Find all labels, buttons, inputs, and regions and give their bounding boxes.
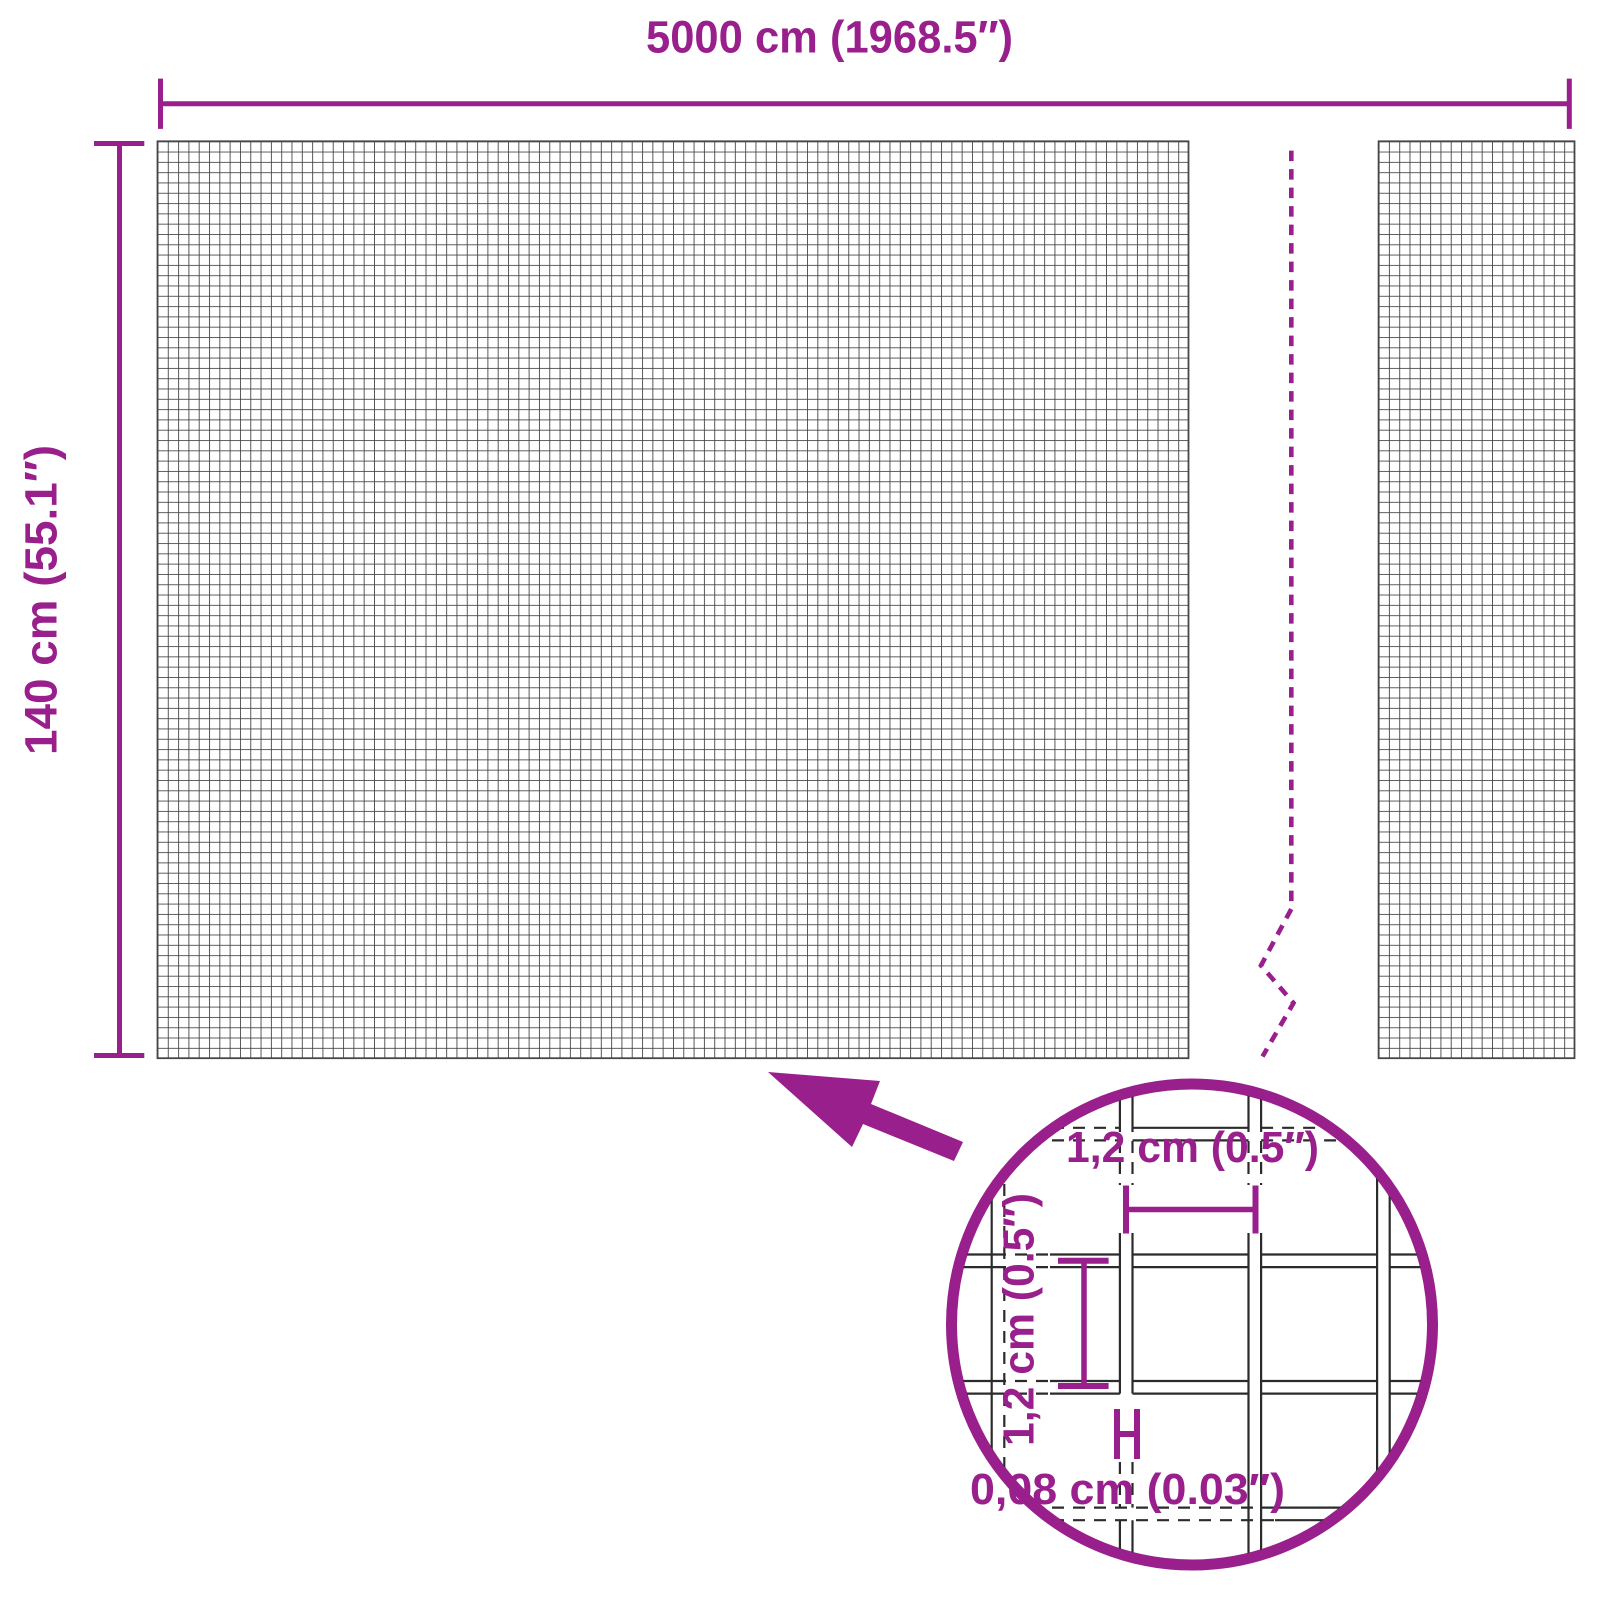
svg-text:0,08 cm (0.03″): 0,08 cm (0.03″) <box>970 1465 1285 1514</box>
svg-text:140 cm (55.1″): 140 cm (55.1″) <box>16 445 67 755</box>
svg-text:5000 cm (1968.5″): 5000 cm (1968.5″) <box>646 12 1013 63</box>
svg-text:1,2 cm (0.5″): 1,2 cm (0.5″) <box>1066 1123 1319 1172</box>
svg-text:1,2 cm (0.5″): 1,2 cm (0.5″) <box>995 1193 1044 1446</box>
